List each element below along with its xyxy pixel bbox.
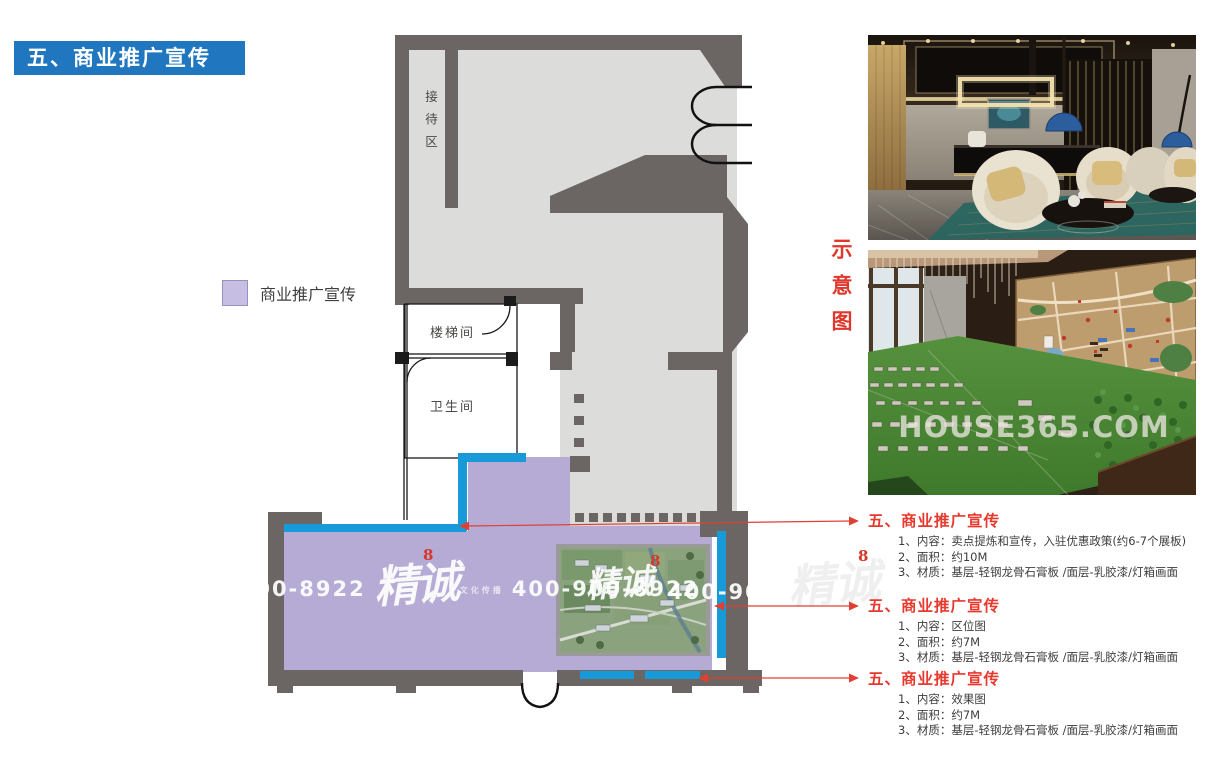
annotation-item: 2、面积：约7M — [898, 708, 1210, 724]
annotation-title: 五、商业推广宣传 — [868, 509, 1210, 531]
room-label-bathroom: 卫生间 — [430, 396, 475, 415]
legend-label: 商业推广宣传 — [260, 281, 356, 305]
room-label-stairwell: 楼梯间 — [430, 322, 475, 341]
watermark-phone-clipped: 400-90 — [668, 580, 762, 604]
watermark-seal-3: 8 — [858, 547, 868, 565]
annotation-item: 3、材质：基层-轻钢龙骨石膏板 /面层-乳胶漆/灯箱画面 — [898, 650, 1210, 666]
annotation-item: 2、面积：约10M — [898, 550, 1210, 566]
annotation-title: 五、商业推广宣传 — [868, 667, 1210, 689]
lobby-photo — [868, 35, 1196, 240]
legend: 商业推广宣传 — [222, 280, 356, 306]
schematic-label: 示意图 — [826, 238, 856, 346]
photo-watermark: HOUSE365.COM — [878, 410, 1190, 444]
stairwell-door-arc — [482, 306, 510, 334]
room-label-reception: 接待区 — [421, 90, 440, 158]
annotation-block-3: 五、商业推广宣传 1、内容：效果图 2、面积：约7M 3、材质：基层-轻钢龙骨石… — [868, 667, 1210, 739]
legend-swatch — [222, 280, 248, 306]
page-title: 五、商业推广宣传 — [14, 41, 245, 75]
annotation-item: 1、内容：卖点提炼和宣传，入驻优惠政策(约6-7个展板) — [898, 534, 1210, 550]
annotation-block-2: 五、商业推广宣传 1、内容：区位图 2、面积：约7M 3、材质：基层-轻钢龙骨石… — [868, 594, 1210, 666]
watermark-seal-1: 8 — [423, 546, 433, 564]
slide-canvas: 五、商业推广宣传 商业推广宣传 接待区 楼梯间 卫生间 示意图 -900-892… — [0, 0, 1210, 757]
annotation-item: 2、面积：约7M — [898, 635, 1210, 651]
bathroom-door-arc — [407, 358, 431, 382]
watermark-seal-2: 8 — [650, 552, 660, 570]
annotation-item: 1、内容：区位图 — [898, 619, 1210, 635]
watermark-brand-logo-2: 精诚 — [583, 554, 654, 608]
sales-office-photo — [868, 250, 1196, 495]
annotation-item: 1、内容：效果图 — [898, 692, 1210, 708]
annotation-item: 3、材质：基层-轻钢龙骨石膏板 /面层-乳胶漆/灯箱画面 — [898, 723, 1210, 739]
dotted-wall-row — [575, 513, 696, 522]
annotation-item: 3、材质：基层-轻钢龙骨石膏板 /面层-乳胶漆/灯箱画面 — [898, 565, 1210, 581]
annotation-block-1: 五、商业推广宣传 1、内容：卖点提炼和宣传，入驻优惠政策(约6-7个展板) 2、… — [868, 509, 1210, 581]
annotation-title: 五、商业推广宣传 — [868, 594, 1210, 616]
entry-door-bottom-icon — [522, 683, 558, 707]
